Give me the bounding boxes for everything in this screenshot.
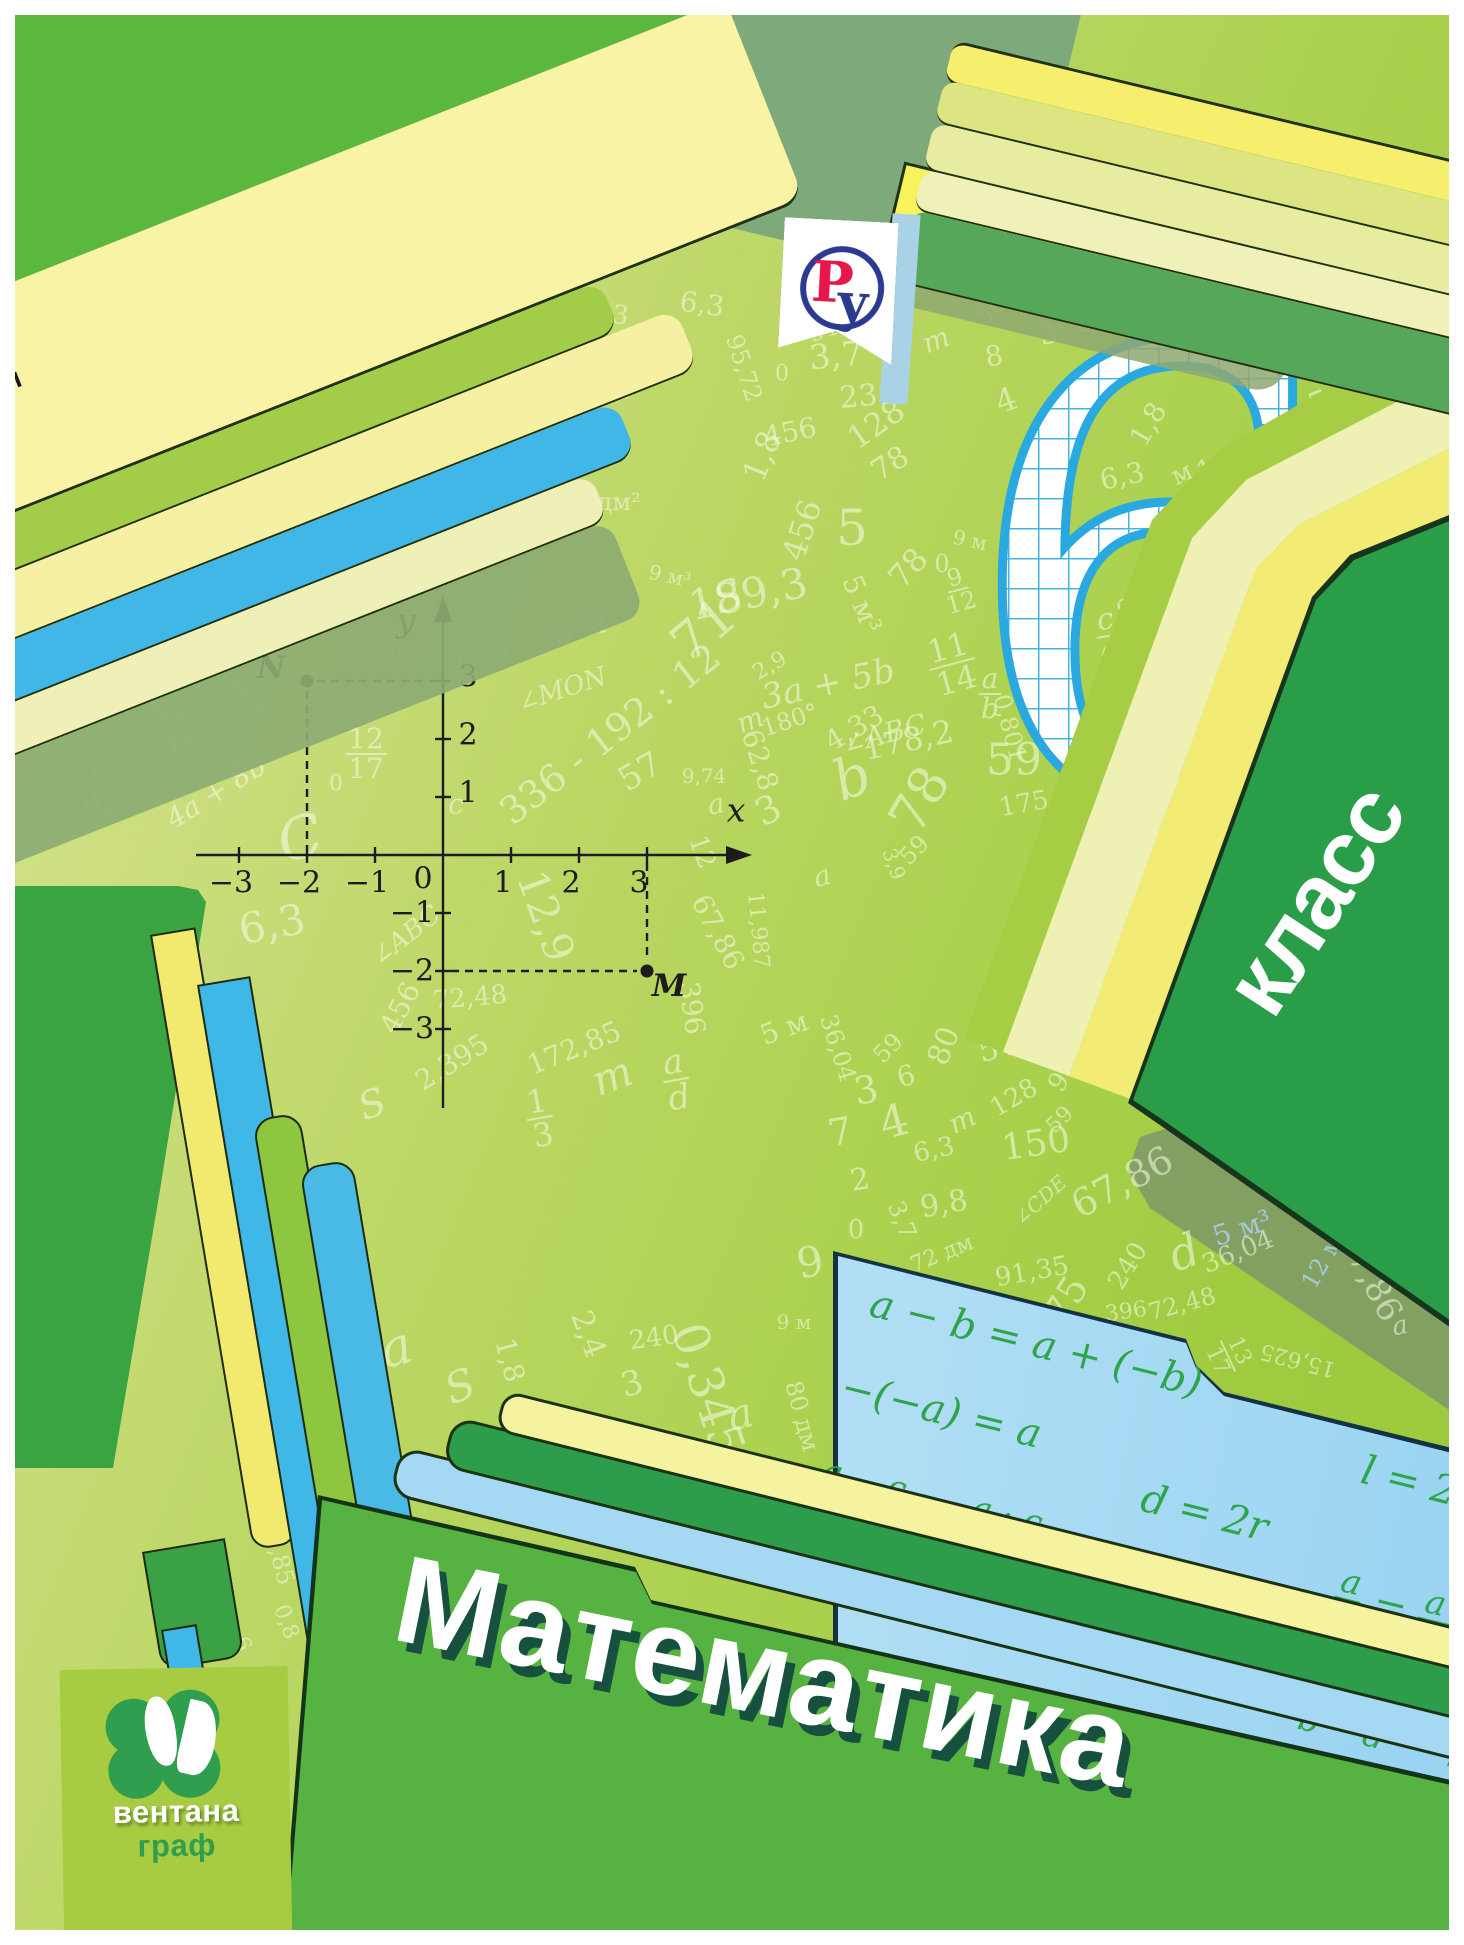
ru-logo-letter-u: у xyxy=(835,272,871,335)
publisher-name-2: граф xyxy=(62,1826,291,1866)
book-cover: м1503961005451,503961005451281,846,3172,… xyxy=(0,0,1464,1945)
top-left-stripes: А. Г. Мерзляк В. Б. Полонский М. С. Якир xyxy=(0,283,13,296)
ventana-graf-logo-icon xyxy=(105,1689,237,1795)
publisher-panel: вентана граф xyxy=(60,1666,293,1945)
